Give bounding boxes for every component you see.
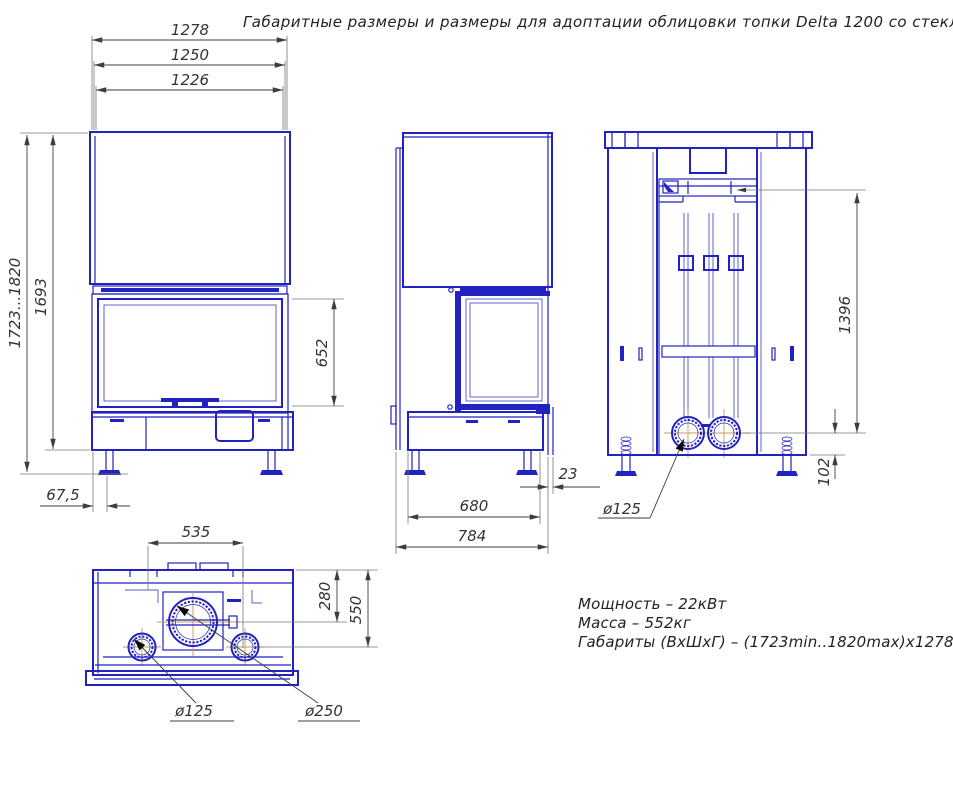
back-top-plate: [605, 132, 812, 148]
dim-height-body: 1693: [32, 278, 50, 316]
dim-ports-depth: 550: [347, 596, 365, 625]
dim-depth-overall: 784: [458, 527, 487, 545]
technical-drawing: 1278 1250 1226 1723...1820 1693 652 67,5: [0, 0, 953, 804]
specs-block: Мощность – 22кВт Масса – 552кг Габариты …: [578, 595, 953, 652]
side-base: [408, 412, 543, 450]
front-hood: [90, 132, 290, 284]
side-view: [391, 133, 553, 475]
dim-connector-height: 1396: [836, 296, 854, 334]
front-legs: [98, 450, 283, 475]
plan-front-flange: [86, 671, 298, 685]
back-right-column: [757, 148, 806, 455]
side-hood: [403, 133, 552, 287]
dim-width-glass: 1226: [171, 71, 209, 89]
front-base: [92, 412, 293, 450]
dim-flue-offset: 535: [182, 523, 211, 541]
drawing-sheet: 1278 1250 1226 1723...1820 1693 652 67,5: [0, 0, 953, 804]
label-plan-flue-diameter: ø250: [304, 702, 343, 720]
side-legs: [404, 450, 538, 475]
dim-height-range: 1723...1820: [6, 258, 24, 349]
back-view: [605, 132, 812, 476]
drawing-title: Габаритные размеры и размеры для адоптац…: [243, 13, 953, 31]
spec-overall-dimensions: Габариты (ВхШхГ) – (1723min..1820max)x12…: [578, 633, 953, 652]
spec-mass: Масса – 552кг: [578, 614, 953, 633]
connector-assembly: [659, 179, 757, 202]
label-back-port-diameter: ø125: [602, 500, 641, 518]
side-glass: [455, 291, 550, 414]
label-plan-port-diameter: ø125: [174, 702, 213, 720]
front-glass-frame: [92, 294, 288, 413]
dim-glass-height: 652: [313, 339, 331, 368]
back-pipes: [684, 213, 738, 418]
front-glass: [98, 299, 282, 407]
side-view-dimensions: 680 784 23: [396, 452, 600, 554]
vent-hatch: [216, 411, 253, 441]
flue-outlet-box: [690, 148, 726, 173]
dim-port-offset: 102: [815, 458, 833, 487]
dim-depth-base: 680: [460, 497, 489, 515]
dim-rear-lip: 23: [558, 465, 577, 483]
dim-flue-depth: 280: [316, 582, 334, 611]
back-left-column: [608, 148, 657, 455]
plan-view: [86, 563, 298, 685]
dim-leg-inset: 67,5: [46, 486, 79, 504]
back-legs: [615, 437, 798, 476]
dim-width-overall: 1278: [171, 21, 209, 39]
dim-width-frame: 1250: [171, 46, 209, 64]
spec-power: Мощность – 22кВт: [578, 595, 953, 614]
door-handle: [161, 398, 219, 407]
front-view: [90, 132, 293, 475]
